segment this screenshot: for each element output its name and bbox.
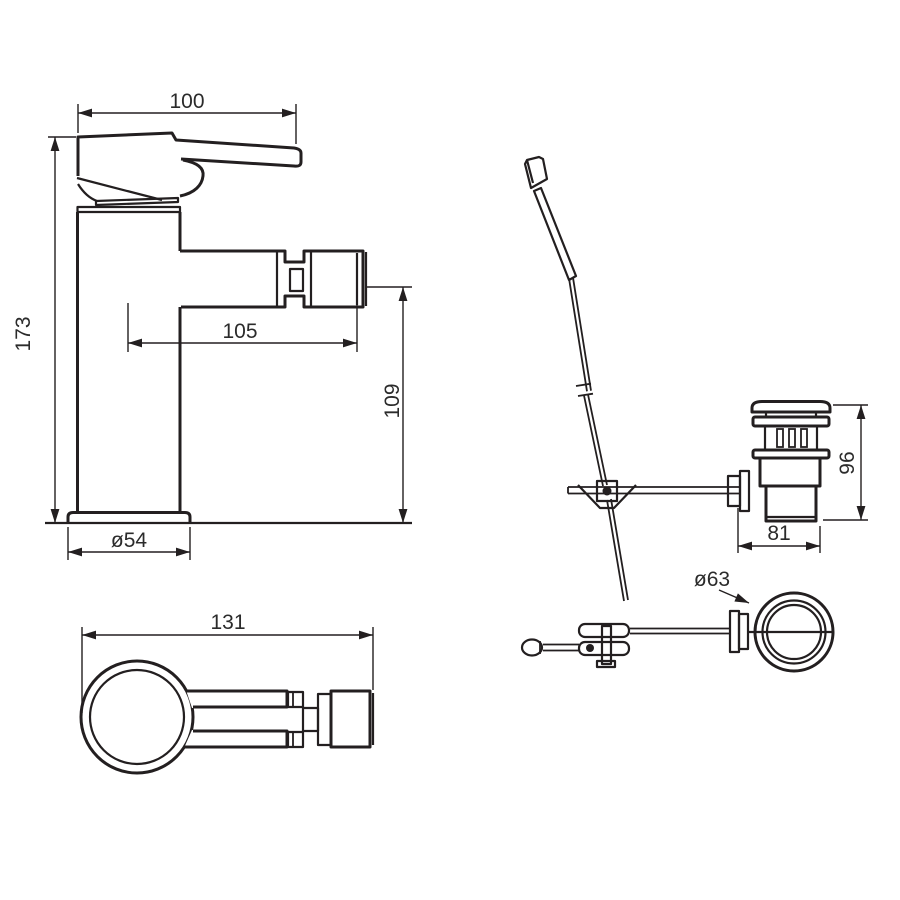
waste-upper-flange <box>753 417 829 426</box>
dim-overall-length-label: 131 <box>210 611 245 634</box>
mixer-plan-spout-tab-bottom <box>288 732 303 747</box>
waste-side-view: 96 81 <box>738 402 868 554</box>
dim-waste-width: 81 <box>738 508 820 553</box>
mixer-handle-lever <box>78 133 301 176</box>
dim-base-diameter: ø54 <box>68 527 190 560</box>
rod-pivot-nut-inner <box>740 471 749 511</box>
mixer-plan-spout-waist <box>303 708 318 731</box>
mixer-cartridge-dome <box>180 160 203 196</box>
popup-pull-rod <box>525 157 749 601</box>
mixer-skirt-ring <box>96 198 178 205</box>
dim-base-diameter-label: ø54 <box>111 529 148 552</box>
waste-fork-hinge <box>602 626 611 664</box>
mixer-spout <box>180 251 363 307</box>
mixer-plan-view: 131 <box>81 611 373 773</box>
mixer-spout-setscrew <box>290 269 303 291</box>
drawing-sheet: 100 173 105 109 ø54 <box>0 0 900 900</box>
rod-lower-segment <box>607 499 628 601</box>
mixer-body-ring <box>78 207 181 212</box>
dim-waste-flange-diameter-label: ø63 <box>694 568 730 591</box>
rod-mid-segment <box>569 278 591 392</box>
waste-plan-hub-inner <box>739 614 748 649</box>
waste-plug-cap <box>752 402 830 413</box>
dim-total-height-label: 173 <box>12 316 35 351</box>
dim-waste-width-label: 81 <box>767 522 790 545</box>
mixer-plan-aerator <box>331 691 370 747</box>
rod-pivot-nut-outer <box>728 476 740 506</box>
dim-waste-flange-diameter: ø63 <box>694 568 749 603</box>
rod-upper-segment <box>534 188 576 280</box>
waste-rod-link <box>543 645 579 651</box>
rod-knob <box>525 157 547 188</box>
waste-horizontal-rod <box>630 629 731 634</box>
mixer-body <box>78 212 181 512</box>
waste-body <box>760 458 820 486</box>
waste-plan-hub-outer <box>730 611 739 652</box>
dim-spout-reach: 105 <box>128 288 357 352</box>
rod-clamp-screw <box>603 487 612 496</box>
mixer-front-view: 100 173 105 109 ø54 <box>12 90 412 560</box>
mixer-plan-spout-tab-top <box>288 692 303 707</box>
mixer-plan-body-inner <box>90 670 184 764</box>
dim-handle-width-label: 100 <box>169 90 204 113</box>
mixer-plan-body-outer <box>81 661 193 773</box>
dim-total-height: 173 <box>12 137 76 523</box>
waste-plan-view: ø63 <box>522 568 833 671</box>
dim-outlet-height: 109 <box>367 287 412 523</box>
technical-drawing-canvas: 100 173 105 109 ø54 <box>0 0 900 900</box>
dim-spout-reach-label: 105 <box>222 320 257 343</box>
dim-waste-height-label: 96 <box>836 451 859 474</box>
lift-rod <box>568 487 740 494</box>
waste-fork-screw <box>586 644 594 652</box>
dim-outlet-height-label: 109 <box>381 383 404 418</box>
waste-rod-knob <box>522 640 542 656</box>
mixer-plan-spout-collar <box>318 694 331 745</box>
waste-tailpipe <box>766 486 816 521</box>
mixer-skirt-arc <box>78 184 97 201</box>
